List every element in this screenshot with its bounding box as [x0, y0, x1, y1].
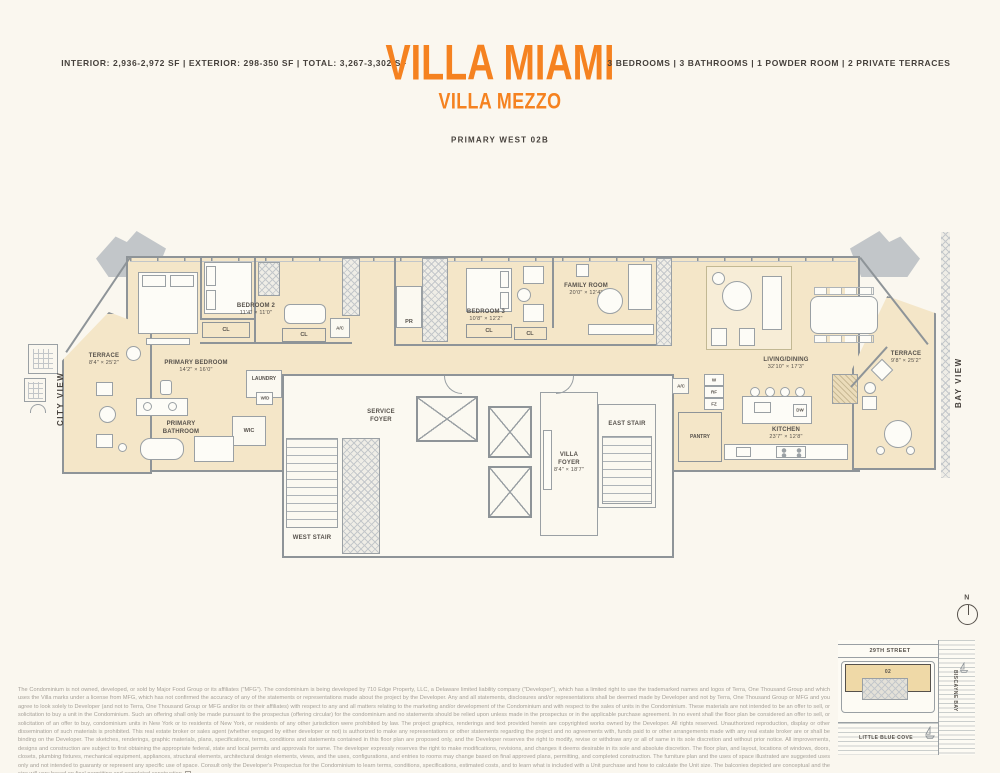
bay-edge-hatch [941, 232, 950, 478]
bar-stool [780, 387, 790, 397]
room-dims: 9'8" × 25'2" [891, 358, 921, 365]
round-table [517, 288, 531, 302]
unit-name: PRIMARY WEST 02B [451, 136, 549, 145]
terrace-chair [906, 446, 915, 455]
room-name: KITCHEN [772, 427, 800, 433]
room-name: FAMILY ROOM [564, 283, 608, 289]
bar-stool [765, 387, 775, 397]
label-villa-foyer: VILLA FOYER 8'4" × 18'7" [552, 451, 586, 475]
armchair [711, 328, 727, 346]
wall-family-left [552, 258, 554, 328]
page-subtitle: VILLA MEZZO [438, 89, 561, 114]
planter-hatch [832, 374, 858, 404]
sink-right [168, 402, 177, 411]
bay-view-label: BAY VIEW [954, 348, 963, 408]
label-wd: W/D [261, 396, 270, 401]
wall-bedroom2-left [200, 258, 202, 320]
room-dims: 11'4" × 11'0" [237, 310, 275, 317]
accent-table [712, 272, 725, 285]
range [776, 446, 806, 458]
legal-disclaimer: The Condominium is not owned, developed,… [18, 686, 830, 773]
corner-ornament-right [850, 231, 920, 277]
header-stats-left: INTERIOR: 2,936-2,972 SF | EXTERIOR: 298… [61, 58, 407, 68]
elevator-2 [488, 466, 532, 518]
armchair [523, 304, 544, 322]
coffee-table [722, 281, 752, 311]
pillow [206, 266, 216, 286]
core-shaft-hatch [342, 438, 380, 554]
sink-left [143, 402, 152, 411]
terrace-dining-table [884, 420, 912, 448]
shower-bedroom2 [258, 262, 280, 296]
kitchen-sink [736, 447, 751, 457]
bathtub-primary [140, 438, 184, 460]
label-cl: CL [485, 328, 492, 334]
terrace-chair [96, 382, 113, 396]
room-dims: 20'0" × 12'4" [564, 290, 608, 297]
room-name: TERRACE [891, 351, 921, 357]
wall-hatch-family-living [656, 258, 672, 346]
bar-stool [750, 387, 760, 397]
wall-bedroom2-bottom [200, 318, 254, 320]
terrace-chair [96, 434, 113, 448]
city-icon-windows [28, 382, 43, 399]
bed-bench [146, 338, 190, 345]
compass-north-label: N [964, 595, 969, 602]
armchair [739, 328, 755, 346]
west-stair-flight [286, 438, 338, 528]
makeup-counter [194, 436, 234, 462]
label-laundry: LAUNDRY [252, 376, 276, 382]
side-table [864, 382, 876, 394]
label-west-stair: WEST STAIR [293, 534, 332, 542]
label-cl: CL [222, 327, 229, 333]
compass-icon [957, 604, 978, 625]
label-primary-bedroom: PRIMARY BEDROOM 14'2" × 16'0" [164, 359, 227, 375]
label-dw: DW [796, 408, 804, 413]
pillow [500, 292, 509, 309]
room-name: VILLA FOYER [552, 451, 586, 467]
label-fz: FZ [711, 402, 717, 407]
room-name: PRIMARY BEDROOM [164, 360, 227, 366]
sailboat-icon [958, 662, 970, 674]
room-name: TERRACE [89, 353, 119, 359]
label-wic: WIC [244, 428, 255, 434]
city-icon-building-2 [24, 378, 46, 402]
sailboat-icon [923, 726, 937, 740]
pillow [206, 290, 216, 310]
unit-marker: 02 [885, 669, 891, 675]
floorplan-page: INTERIOR: 2,936-2,972 SF | EXTERIOR: 298… [0, 0, 1000, 773]
label-living-dining: LIVING/DINING 32'10" × 17'3" [763, 356, 808, 372]
bathtub-bedroom2 [284, 304, 326, 324]
island-sink [754, 402, 771, 413]
elevator-service [416, 396, 478, 442]
compass-needle [968, 605, 969, 615]
room-name: BEDROOM 3 [467, 309, 505, 315]
label-wine: W [712, 378, 716, 383]
room-name: LIVING/DINING [763, 357, 808, 363]
page-title: VILLA MIAMI [385, 33, 614, 91]
room-dims: 8'4" × 25'2" [89, 360, 119, 367]
city-icon-building-1 [28, 344, 58, 374]
label-kitchen: KITCHEN 23'7" × 12'8" [769, 426, 802, 442]
label-ac: A/C [336, 326, 344, 331]
pillow [142, 275, 166, 287]
dining-chairs-top [814, 287, 874, 295]
room-dims: 23'7" × 12'8" [769, 434, 802, 441]
toilet-primary [160, 380, 172, 395]
sofa-family [628, 264, 652, 310]
bay-label: BISCAYNE BAY [952, 670, 958, 726]
shaft-hatch-west [342, 258, 360, 316]
room-dims: 32'10" × 17'3" [763, 364, 808, 371]
label-terrace-east: TERRACE 9'8" × 25'2" [891, 350, 921, 366]
terrace-table [99, 406, 116, 423]
elevator-1 [488, 406, 532, 458]
header-stats-right: 3 BEDROOMS | 3 BATHROOMS | 1 POWDER ROOM… [607, 58, 950, 68]
label-bedroom-3: BEDROOM 3 10'8" × 12'2" [467, 308, 505, 324]
disclaimer-text: The Condominium is not owned, developed,… [18, 687, 830, 773]
room-dims: 14'2" × 16'0" [164, 367, 227, 374]
label-bedroom-2: BEDROOM 2 11'4" × 11'0" [237, 302, 275, 318]
city-view-label: CITY VIEW [56, 366, 65, 426]
room-dims: 8'4" × 18'7" [552, 467, 586, 474]
label-family-room: FAMILY ROOM 20'0" × 12'4" [564, 282, 608, 298]
shaft-hatch-center [422, 258, 448, 342]
label-rf: RF [711, 390, 717, 395]
label-primary-bathroom: PRIMARY BATHROOM [161, 420, 201, 436]
room-dims: 10'8" × 12'2" [467, 316, 505, 323]
wall-left-corridor [200, 342, 352, 344]
label-pantry: PANTRY [690, 434, 710, 440]
wall-hall-top [394, 344, 672, 346]
bar-stool [795, 387, 805, 397]
pillow [170, 275, 194, 287]
sofa-living [762, 276, 782, 330]
label-east-stair: EAST STAIR [608, 420, 645, 428]
wall-bath2-left [254, 258, 256, 342]
dining-chairs-bottom [814, 335, 874, 343]
street-label: 29TH STREET [869, 648, 910, 654]
sitemap-area: 29TH STREET 02 BISCAYNE BAY LITTLE BLUE … [838, 640, 975, 755]
pillow [500, 271, 509, 288]
armchair [523, 266, 544, 284]
media-console [588, 324, 654, 335]
side-table [576, 264, 589, 277]
label-pr: PR [405, 319, 413, 325]
city-icon-dome [30, 404, 46, 413]
terrace-chair [876, 446, 885, 455]
side-table [118, 443, 127, 452]
lounge-chair [126, 346, 141, 361]
terrace-chair [862, 396, 877, 410]
tower-hatch [862, 678, 908, 700]
label-ac: A/C [677, 384, 685, 389]
label-cl: CL [300, 332, 307, 338]
east-stair-flight [602, 436, 652, 504]
foyer-console [543, 430, 552, 490]
room-name: BEDROOM 2 [237, 303, 275, 309]
dining-table [810, 296, 878, 334]
city-icon-windows [33, 349, 53, 369]
label-terrace-west: TERRACE 8'4" × 25'2" [89, 352, 119, 368]
label-service-foyer: SERVICE FOYER [364, 408, 398, 424]
label-cl: CL [526, 331, 533, 337]
cove-label: LITTLE BLUE COVE [859, 735, 913, 741]
